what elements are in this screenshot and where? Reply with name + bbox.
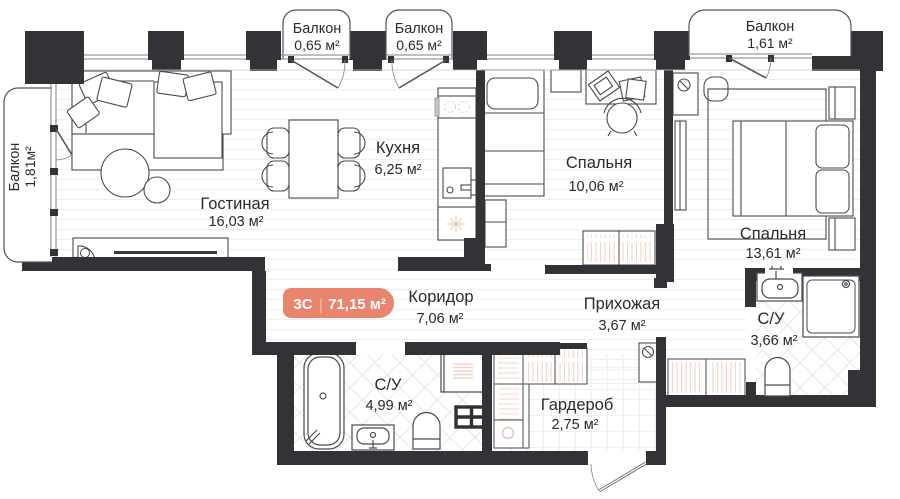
- svg-text:Кухня: Кухня: [376, 139, 420, 157]
- svg-text:3С: 3С: [293, 296, 312, 313]
- svg-text:Балкон: Балкон: [395, 21, 444, 37]
- svg-text:Балкон: Балкон: [746, 19, 795, 35]
- svg-text:Балкон: Балкон: [293, 21, 342, 37]
- svg-text:С/У: С/У: [375, 376, 403, 394]
- svg-text:7,06 м²: 7,06 м²: [416, 311, 463, 327]
- svg-text:4,99 м²: 4,99 м²: [365, 398, 412, 414]
- svg-text:3,66 м²: 3,66 м²: [750, 333, 797, 349]
- svg-text:1,61 м²: 1,61 м²: [747, 35, 793, 51]
- svg-text:Гардероб: Гардероб: [541, 396, 614, 414]
- svg-text:71,15 м²: 71,15 м²: [328, 296, 386, 313]
- svg-text:1,81м²: 1,81м²: [22, 146, 38, 188]
- svg-text:0,65 м²: 0,65 м²: [294, 37, 340, 53]
- svg-text:0,65 м²: 0,65 м²: [396, 37, 442, 53]
- svg-text:Коридор: Коридор: [408, 288, 473, 306]
- svg-text:Спальня: Спальня: [566, 154, 632, 172]
- svg-text:13,61 м²: 13,61 м²: [745, 246, 800, 262]
- svg-text:6,25 м²: 6,25 м²: [374, 162, 421, 178]
- svg-text:16,03 м²: 16,03 м²: [208, 214, 263, 230]
- svg-text:Гостиная: Гостиная: [200, 195, 269, 213]
- svg-text:3,67 м²: 3,67 м²: [598, 318, 645, 334]
- svg-text:Прихожая: Прихожая: [584, 295, 660, 313]
- svg-text:Балкон: Балкон: [7, 143, 23, 192]
- svg-text:Спальня: Спальня: [740, 225, 806, 243]
- svg-text:2,75 м²: 2,75 м²: [551, 417, 598, 433]
- svg-text:С/У: С/У: [758, 310, 786, 328]
- svg-text:10,06 м²: 10,06 м²: [568, 179, 623, 195]
- svg-text:|: |: [319, 297, 323, 314]
